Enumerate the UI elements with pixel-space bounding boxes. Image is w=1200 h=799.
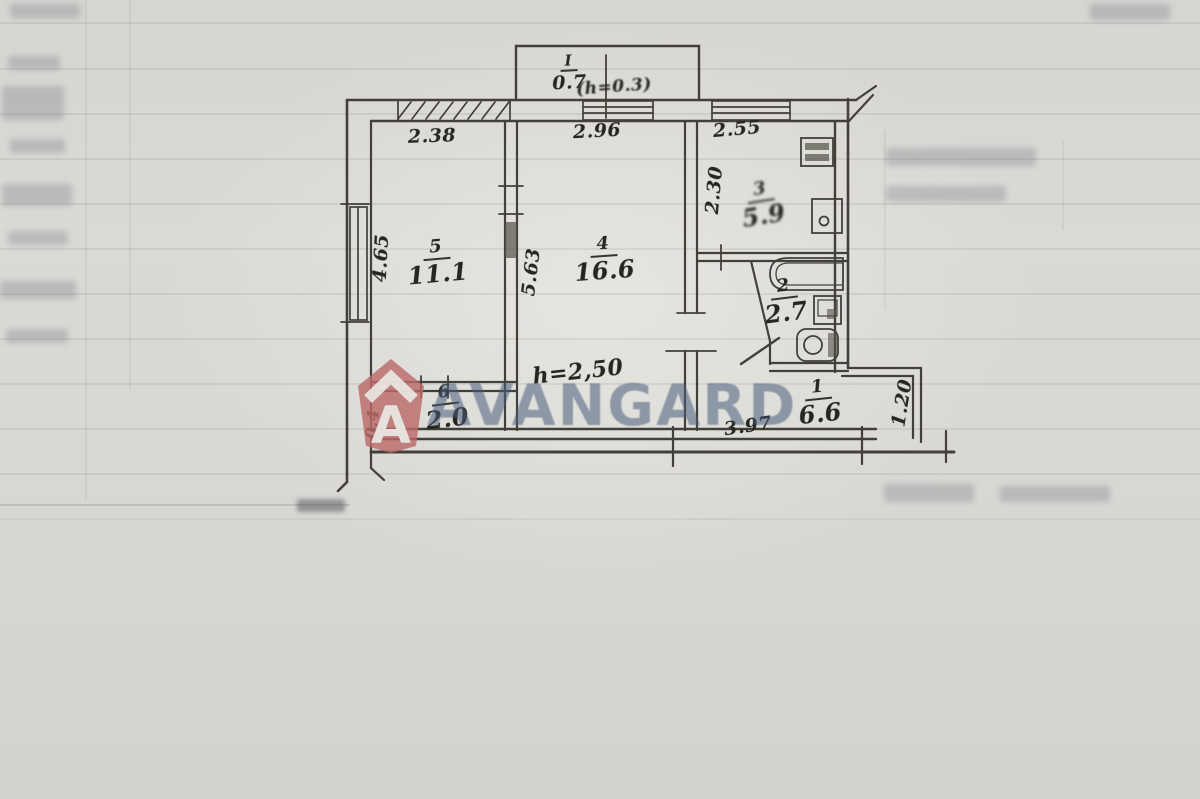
logo-letter: A [371,396,411,455]
watermark: A AVANGARD [0,0,1200,799]
watermark-text: AVANGARD [427,373,877,439]
agency-logo: A [355,355,427,455]
floor-plan-scan: 2.38 2.96 2.55 2.30 4.65 5.63 3.97 1.20 … [0,0,1200,799]
